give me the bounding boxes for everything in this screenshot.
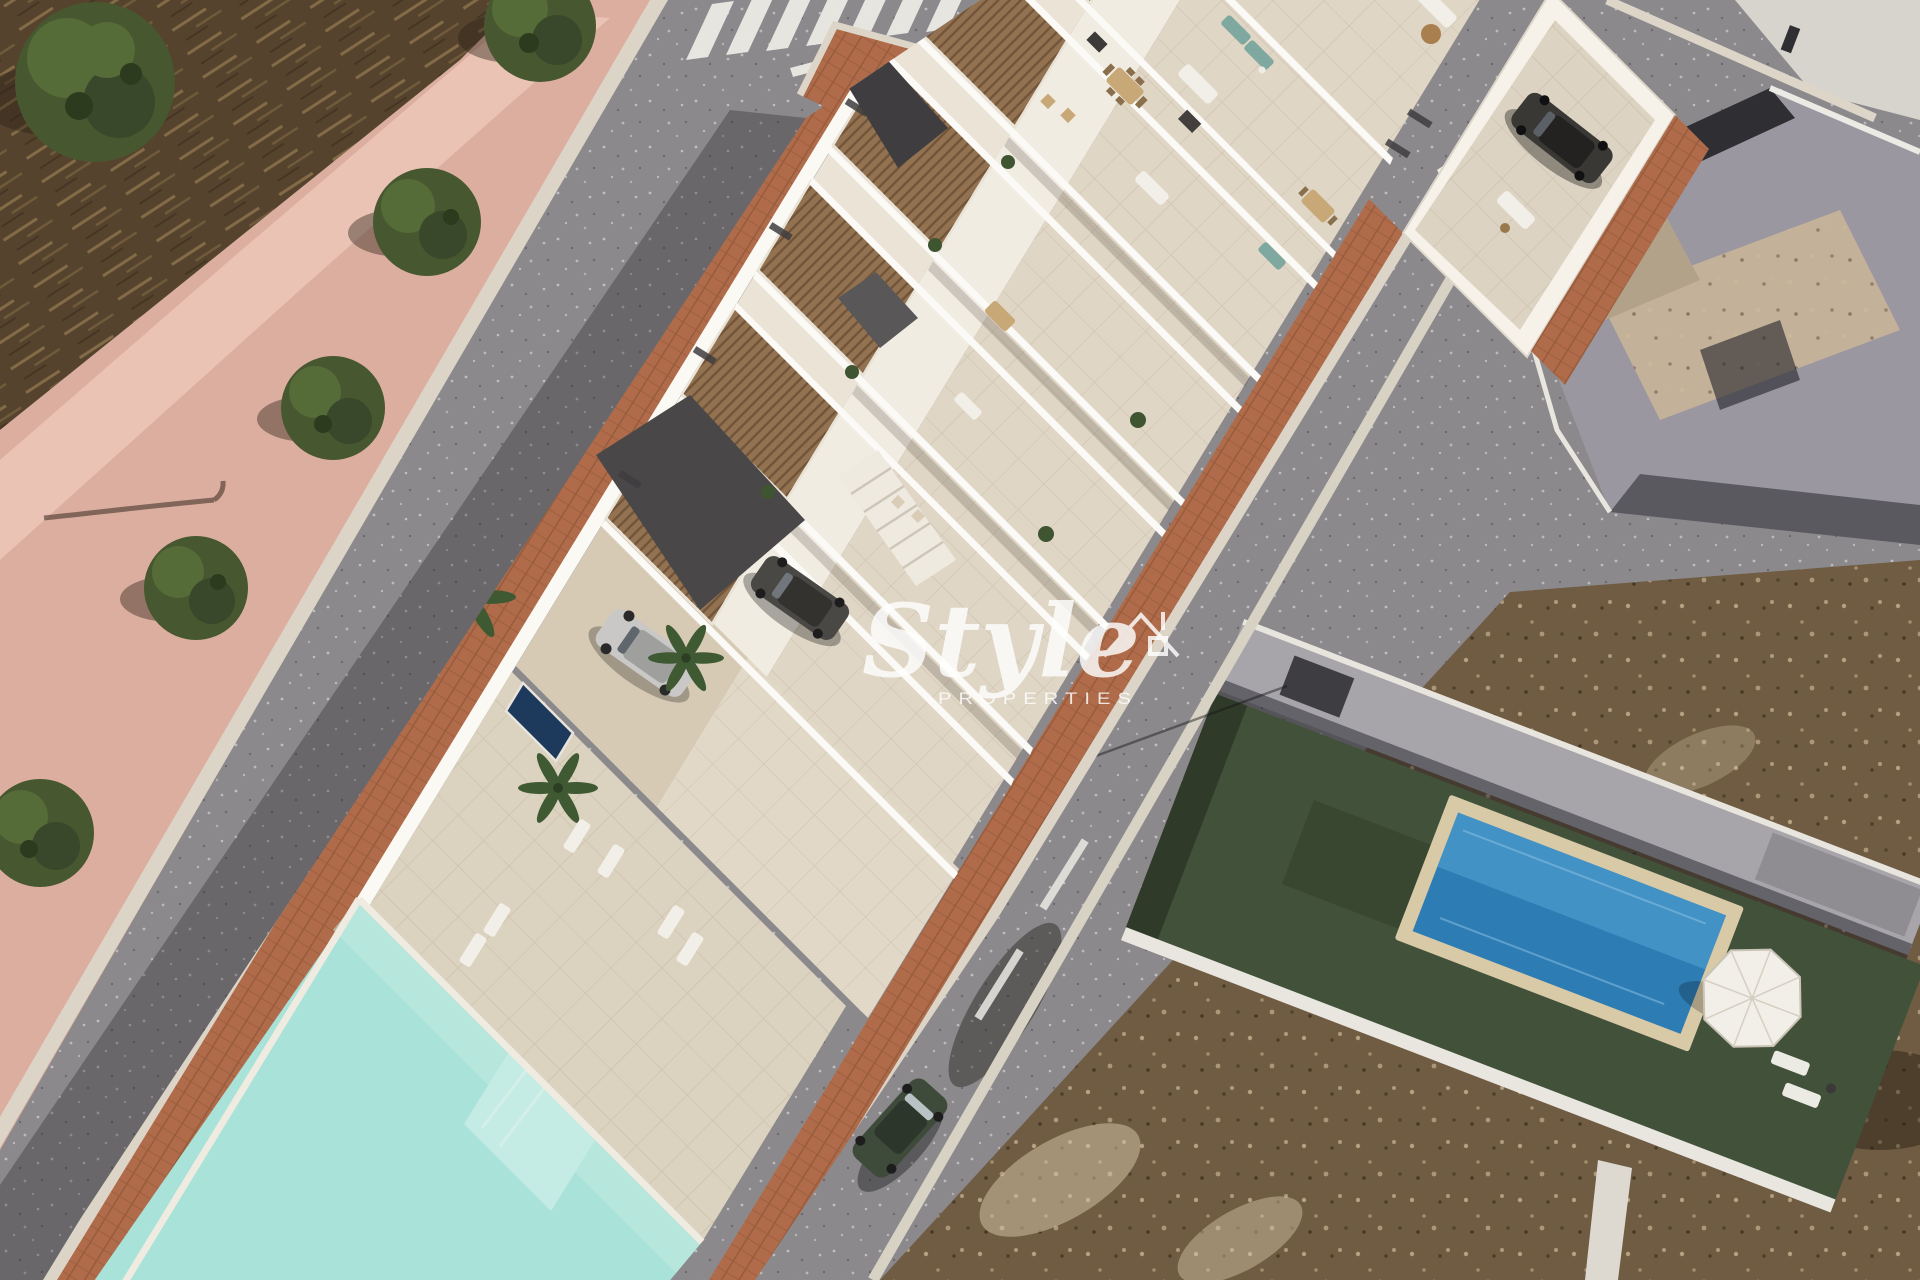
aerial-render: Style PROPERTIES: [0, 0, 1920, 1280]
watermark-script: Style: [862, 582, 1140, 700]
floor-lamp: [1259, 67, 1266, 74]
round-table: [1421, 24, 1441, 44]
watermark-caps: PROPERTIES: [938, 689, 1138, 708]
watermark: Style PROPERTIES: [862, 582, 1178, 708]
